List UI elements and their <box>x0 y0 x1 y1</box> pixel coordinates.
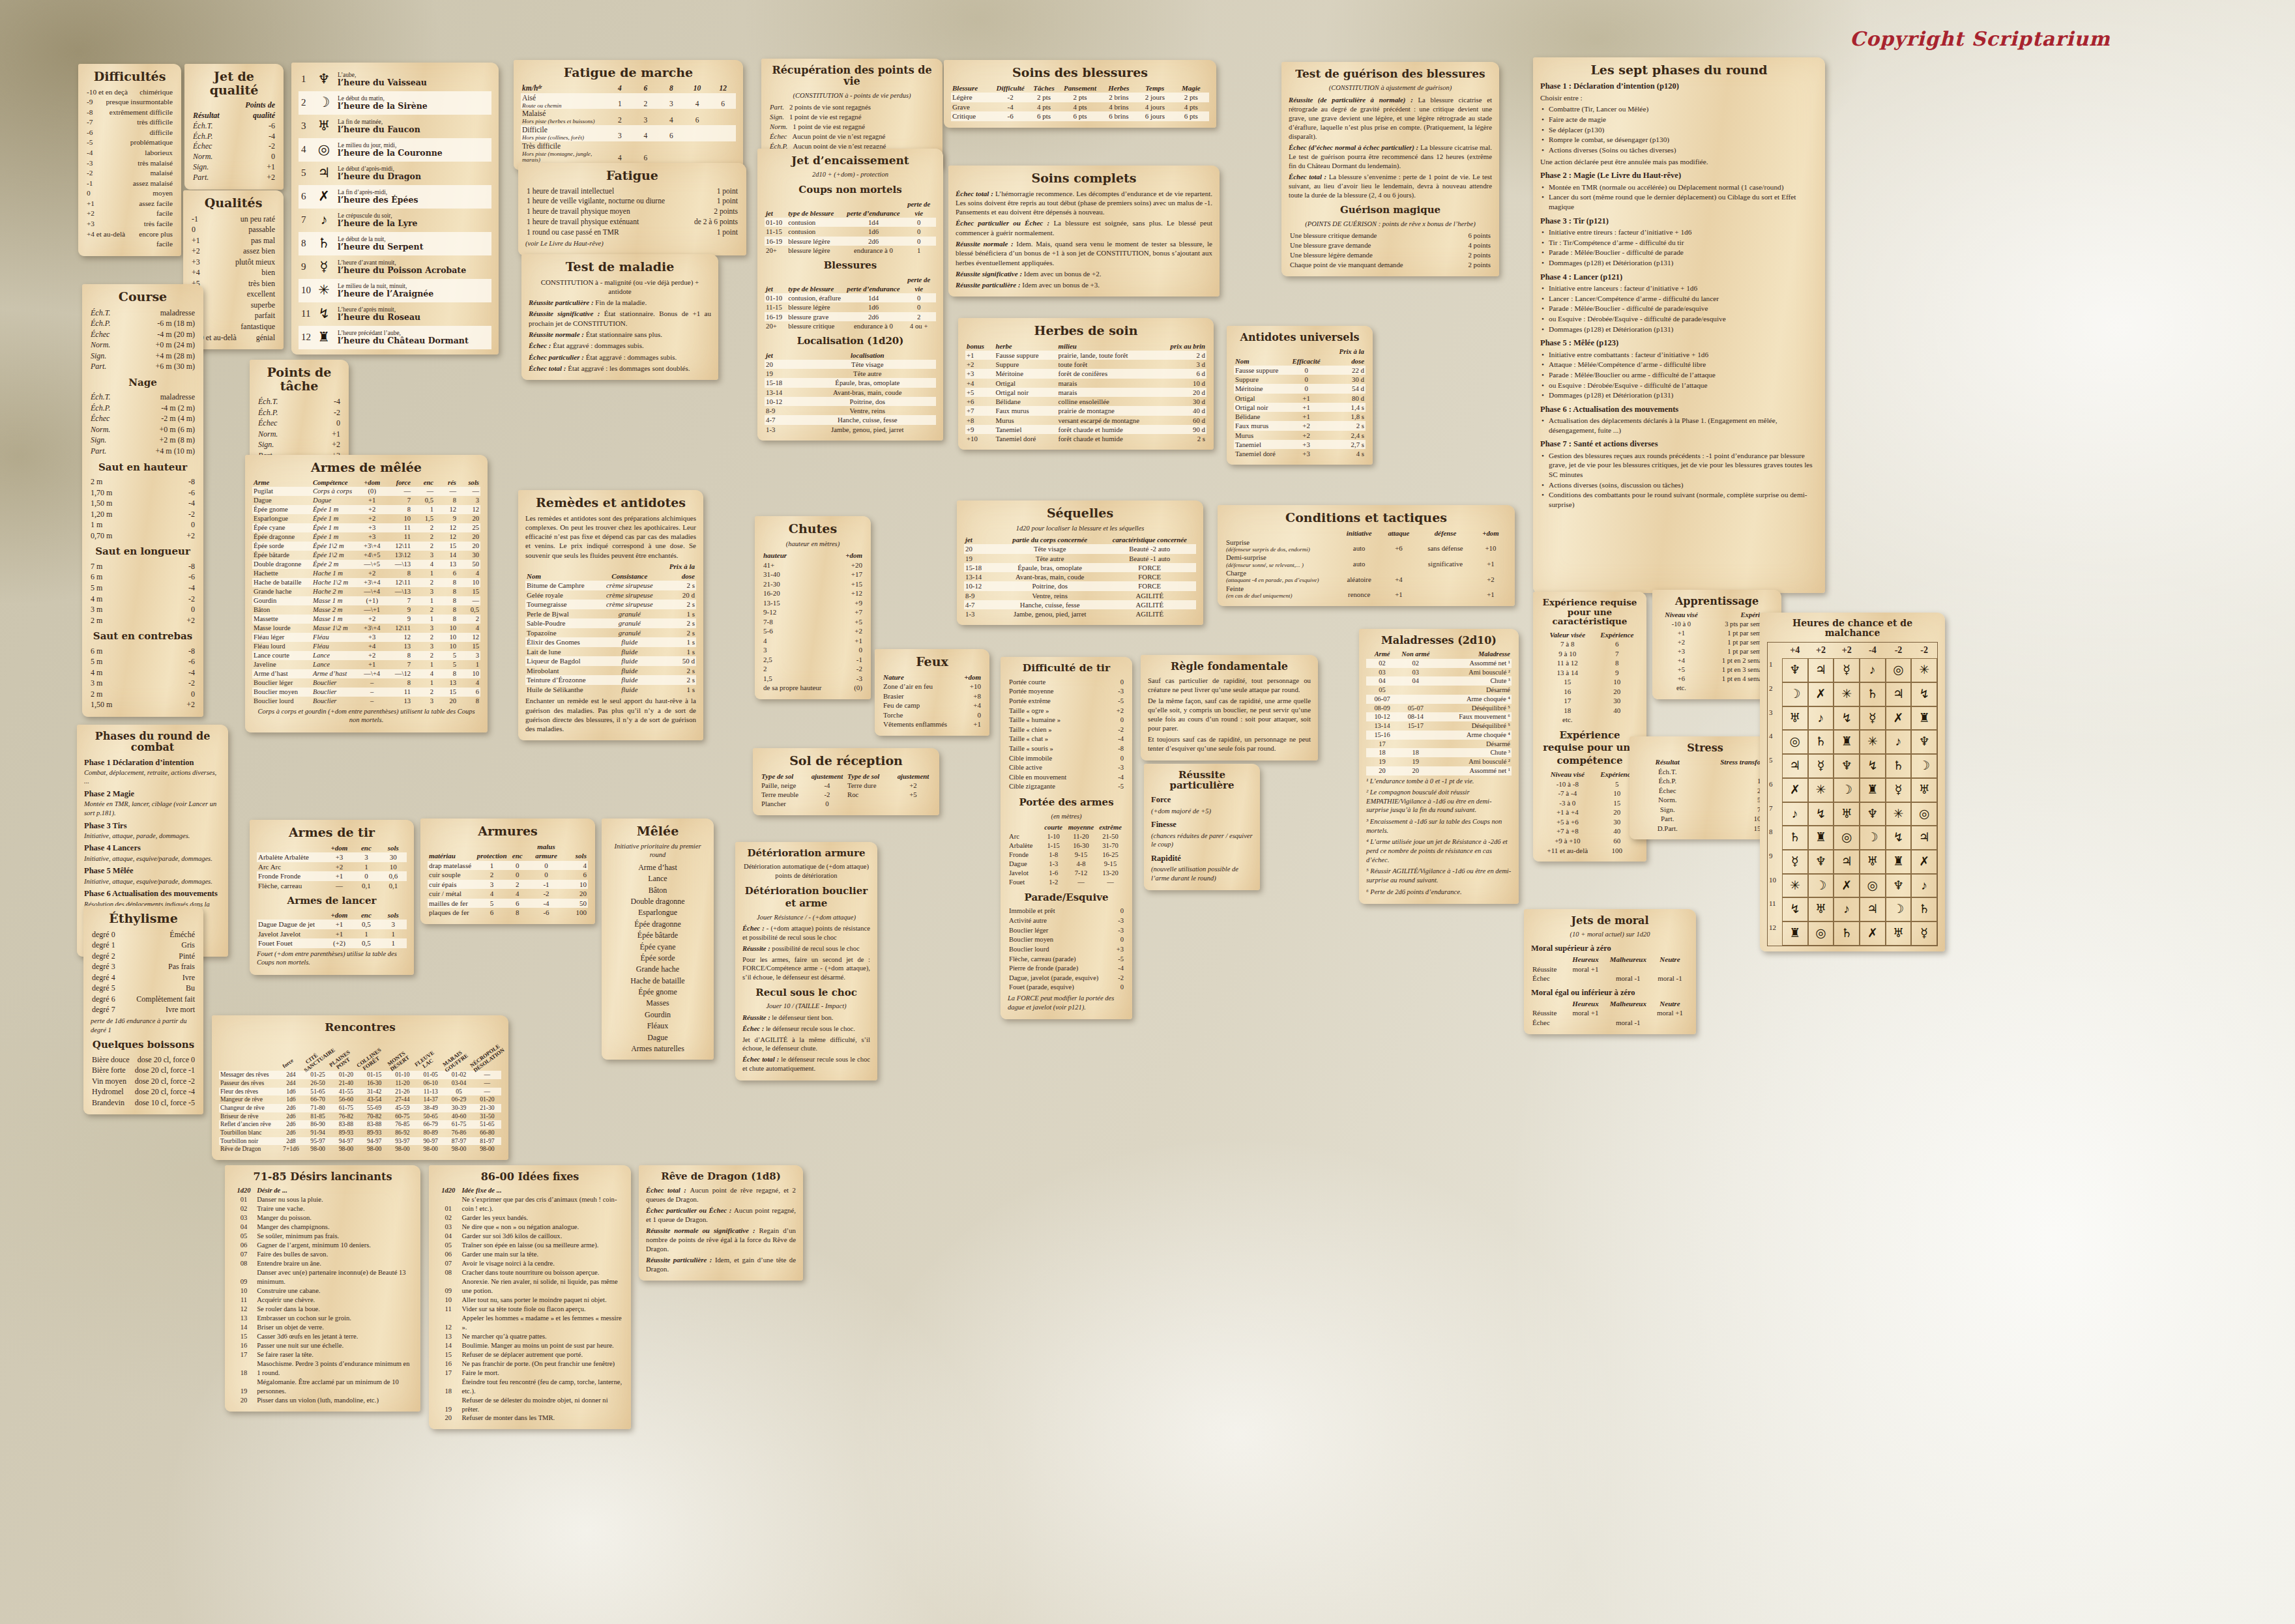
table-cell: 8 <box>509 908 526 918</box>
table-cell: (0) <box>358 487 386 496</box>
table-row: +6Bélidanecolline ensoleillée30 d <box>965 397 1206 406</box>
table-row: 41++20 <box>762 560 864 570</box>
bullet-item: •Parade : Mêlée/Bouclier - difficulté de… <box>1542 304 1818 313</box>
table-row: 1,70 m-6 <box>89 487 196 499</box>
table-cell: 13-14 <box>1367 721 1397 731</box>
table-cell: 10 <box>686 83 709 93</box>
table-cell: force <box>388 478 411 487</box>
bullet-item: •Dommages (p128) et Détérioration (p131) <box>1542 325 1818 334</box>
table-cell: Bitume de Camphre <box>527 581 599 590</box>
table-cell: 8 <box>436 578 456 587</box>
table-header-row: Nature+dom <box>882 673 982 682</box>
rune-icon: ♪ <box>1808 706 1834 731</box>
antidotes-universels-title: Antidotes universels <box>1234 332 1366 343</box>
table-body: AiséRoute ou chemin12346MalaiséHors pist… <box>521 93 736 164</box>
paragraph: Réussite particulière : Idem avec un bon… <box>956 280 1212 289</box>
hour-text: Le milieu de la nuit, minuit,l’heure de … <box>334 283 489 299</box>
table-cell: 8 <box>388 505 411 514</box>
table-cell: 61-75 <box>333 1104 358 1112</box>
table-row: +1assez facile <box>85 199 174 209</box>
table-row: 1510 <box>1540 677 1639 687</box>
rune-icon: ♆ <box>1834 754 1860 778</box>
table-row: Réussitemoral +1 <box>1531 964 1689 974</box>
table-row: Part.+2 <box>192 173 276 183</box>
row-value: +4 m (10 m) <box>156 446 195 457</box>
table-cell: sols <box>381 843 405 853</box>
table-cell: Fausse suppure <box>995 351 1055 360</box>
table-row: 16-20+12 <box>762 588 864 598</box>
recuperation-points-de-vie-title: Récupération des points de vie <box>768 65 935 87</box>
table-cell: FORCE <box>1105 581 1195 590</box>
table-cell: 01 <box>233 1195 254 1204</box>
table-cell: 38-49 <box>418 1104 443 1112</box>
table-row: de sa propre hauteur(0) <box>762 683 864 693</box>
list-item: Épée dragonne <box>609 919 707 930</box>
table-cell: 8 <box>660 83 683 93</box>
table-row: Torche0 <box>882 710 982 720</box>
table-cell: 14-37 <box>418 1095 443 1104</box>
table-cell: Sign. <box>193 162 229 173</box>
hour-name: l’heure du Faucon <box>338 125 489 134</box>
table-cell: 12 <box>436 523 456 532</box>
table-cell: 13 à 14 <box>1542 668 1594 678</box>
paragraph: Choisir entre : <box>1540 93 1818 103</box>
row-label: 1 heure de travail physique moyen <box>527 207 630 217</box>
table-row: Perle de Bjwalgranulé1 s <box>525 609 696 619</box>
table-cell: fluide <box>602 656 657 666</box>
experience-requise-title: Expérience requise pour une caractéristi… <box>1540 598 1639 626</box>
armures-title: Armures <box>428 824 588 838</box>
paragraph-heading: Force <box>1151 794 1253 805</box>
table-cell: 01-10 <box>766 218 785 227</box>
phase-description: Initiative, attaque, esquive/parade, dom… <box>84 877 221 886</box>
table-cell: 2 pts <box>1060 93 1099 102</box>
row-value: -4 <box>1118 734 1124 744</box>
table-header-row: 1d20Idée fixe de ... <box>436 1186 624 1195</box>
table-cell: Tête autre <box>998 554 1102 563</box>
table-cell: 2 pts <box>1030 93 1059 102</box>
table-cell: 31-70 <box>1097 841 1124 850</box>
table-cell: forêt chaude et humide <box>1059 425 1162 434</box>
table-row: -7très difficile <box>85 117 174 128</box>
table-cell: +9 <box>967 425 993 434</box>
note-text: (CONSTITUTION à - points de vie perdus) <box>768 91 935 100</box>
row-label: -2 <box>87 168 93 179</box>
bullet-icon: • <box>1542 115 1549 124</box>
table-row: 17Désarmé <box>1366 740 1512 749</box>
table-row: Pierre de fronde (parade)-4 <box>1008 964 1125 974</box>
table-cell: 12 <box>459 633 479 642</box>
table-cell: 10 d <box>1164 379 1205 388</box>
table-cell: Pugilat <box>254 487 310 496</box>
table-row: +9Tanemielforêt chaude et humide90 d <box>965 425 1206 434</box>
table-cell: 6 <box>509 899 526 908</box>
row-label: 0 <box>87 188 91 199</box>
table-cell: 41+ <box>763 560 822 570</box>
table-cell: 18 <box>233 1369 254 1378</box>
table-row: cuir souple2006 <box>428 870 588 880</box>
table-cell: 19 <box>1367 757 1397 766</box>
table-cell: Consistance <box>602 572 657 581</box>
row-label: Bière douce <box>92 1054 130 1066</box>
paragraph-lead: Réussite particulière : <box>646 1256 715 1264</box>
table-cell: 3 <box>459 651 479 660</box>
table-cell: (+2) <box>327 938 351 948</box>
table-cell: 11 <box>388 523 411 532</box>
table-cell: 1 <box>903 246 935 255</box>
table-header-row: forceCITÉ SANCTUAIREPLAINES PONTCOLLINES… <box>219 1037 501 1071</box>
table-cell: 1 <box>354 862 378 872</box>
table-cell: Arme d’hast <box>313 669 356 678</box>
row-value: très bien <box>248 278 275 289</box>
row-value: Gris <box>181 940 195 951</box>
hour-row: 8♄Le début de la nuit,l’heure du Serpent <box>299 232 491 255</box>
rune-icon: ♅ <box>1782 706 1808 731</box>
table-row: JavelineLance+17151 <box>252 660 480 669</box>
section-subtitle: Blessures <box>765 259 936 272</box>
section-subtitle: Détérioration bouclier et arme <box>742 885 870 910</box>
rune-icon: ☿ <box>1782 850 1808 874</box>
table-cell: Tanemiel doré <box>1235 449 1288 458</box>
table-cell: 12 <box>711 83 735 93</box>
table-cell: 21-30 <box>475 1104 500 1112</box>
row-value: -2 <box>1118 725 1124 735</box>
table-row: +5 à +630 <box>1540 817 1639 827</box>
table-cell: 10 <box>436 624 456 633</box>
list-item: Masses <box>609 998 707 1009</box>
list-item: Armes naturelles <box>609 1043 707 1054</box>
table-cell: 0 <box>509 870 526 880</box>
bullet-item: •Montée en TMR (normale ou accélérée) ou… <box>1542 182 1818 192</box>
table-cell: moral +1 <box>1567 964 1604 974</box>
table-body: 0202Assommé net ¹0303Ami bousculé ²0404C… <box>1366 659 1512 776</box>
course-nage-sauts: CourseÉch.T.maladresseÉch.P.-6 m (18 m)É… <box>82 284 203 717</box>
table-cell: 0 <box>529 870 564 880</box>
row-label: 1,50 m <box>91 498 112 509</box>
table-cell: 2 <box>763 664 822 674</box>
melee-initiative: MêléeInitiative prioritaire du premier r… <box>602 819 714 1060</box>
table-cell: Feinte <box>1226 584 1337 593</box>
table-row: +4bien <box>190 267 276 278</box>
table-cell: Entendre braire un âne. <box>257 1259 412 1268</box>
table-cell: 1 <box>381 938 405 948</box>
table-row: Grande hacheHache 2 m—\+4—\133815 <box>252 587 480 596</box>
table-cell: 20 <box>459 532 479 542</box>
table-cell: Charge <box>1226 568 1337 577</box>
row-label: Immobile et prêt <box>1009 906 1055 916</box>
table-cell: 1,5 <box>763 674 822 684</box>
rune-icon: ◎ <box>1911 802 1937 826</box>
table-row: 1-3Jambe, genou, pied, jarretAGILITÉ <box>964 609 1196 618</box>
phase-heading: Phase 4 Lancers <box>84 843 221 853</box>
rune-icon: ✗ <box>1808 682 1834 706</box>
table-row: 18Masochisme. Perdre 3 points d’enduranc… <box>232 1359 413 1378</box>
table-row: Dague, javelot (parade, esquive)-2 <box>1008 974 1125 983</box>
table-row: 1-3Jambe, genou, pied, jarret <box>765 425 936 434</box>
table-cell: cuir souple <box>429 870 475 880</box>
table-row: +1Fausse suppureprairie, lande, toute fo… <box>965 351 1206 360</box>
paragraph-lead: Échec : <box>742 925 767 932</box>
table-cell: 4 <box>634 131 658 141</box>
table-cell: 2d6 <box>280 1104 302 1112</box>
paragraph: Échec total : État aggravé : les dommage… <box>529 364 711 373</box>
bullet-item: •Faire acte de magie <box>1542 115 1818 124</box>
table-cell: 81-97 <box>475 1137 500 1146</box>
row-value: +6 m (30 m) <box>156 361 195 372</box>
table-cell: défense <box>1418 529 1472 538</box>
table-cell: sols <box>459 478 479 487</box>
heures-de-chance-et-malchance-title: Heures de chance et de malchance <box>1767 618 1938 638</box>
apprentissage-title: Apprentissage <box>1659 596 1774 607</box>
table-cell: 1d4 <box>847 293 901 302</box>
table-row: 8-9Ventre, reins <box>765 406 936 415</box>
table-cell: 10 <box>567 880 587 890</box>
paragraph: Échec total : L’hémorragie recommence. L… <box>956 189 1212 217</box>
table-cell: 30 <box>1596 696 1638 706</box>
bullet-item: •Lancer : Lancer/Compétence d’arme - dif… <box>1542 294 1818 304</box>
rune-icon: ☽ <box>1911 754 1937 778</box>
table-cell: 8 <box>436 669 456 678</box>
table-row: 13-14Avant-bras, main, coude <box>765 388 936 397</box>
row-label: Éch.P. <box>258 407 278 418</box>
hour-number: 6 <box>301 190 314 203</box>
paragraph-lead: Échec particulier ou Échec : <box>956 219 1053 227</box>
row-label: Norm. <box>770 122 787 132</box>
table-cell: 06 <box>233 1241 254 1250</box>
table-cell: Épée cyane <box>254 523 310 532</box>
table-cell: moral -1 <box>1652 974 1688 983</box>
table-cell: 12 <box>459 505 479 514</box>
table-cell: 8 <box>436 496 456 505</box>
table-cell-sub: Hors piste (herbes et buissons) <box>522 119 606 124</box>
row-value: +3 <box>1117 945 1124 955</box>
paragraph: Échec total : La blessure s’envenime : p… <box>1289 172 1492 199</box>
table-cell: hauteur <box>763 551 822 560</box>
table-cell: 1d6 <box>847 302 901 312</box>
table-cell: Mégalomanie. Être acclamé par un minimum… <box>257 1378 412 1396</box>
table-header-row: initiativeattaquedéfense+dom <box>1225 529 1508 538</box>
table-cell: +2 <box>967 360 993 369</box>
table-cell: 20 <box>1596 687 1638 697</box>
table-cell: Éch.P. <box>1638 776 1697 786</box>
data-table: Valeur viséeExpérience7 à 869 à 10711 à … <box>1540 630 1639 725</box>
rune-grid-row: 3♅♪↯☿✗♜ <box>1768 706 1937 731</box>
table-body: PugilatCorps à corps(0)————DagueDague+17… <box>252 487 480 705</box>
table-row: Fouet1-2—— <box>1008 878 1125 887</box>
rune-icon: ✗ <box>1834 874 1860 898</box>
table-row: 2 m-8 <box>89 476 196 487</box>
table-cell: 0 <box>509 861 526 871</box>
table-cell: 30 <box>381 852 405 862</box>
table-row: Sign.+2 <box>257 439 342 450</box>
table-cell: +dom <box>1475 529 1506 538</box>
row-value: Ivre <box>183 972 195 983</box>
table-cell: Manger du poisson. <box>257 1213 412 1223</box>
hour-rune-icon: ♜ <box>314 328 334 346</box>
table-cell: 17 <box>1542 696 1594 706</box>
table-cell: +4 <box>1661 656 1702 665</box>
row-label: Hydromel <box>92 1086 124 1097</box>
paragraph-heading: Phase 4 : Lancer (p121) <box>1540 272 1818 282</box>
table-cell: — <box>1097 878 1124 887</box>
table-row: Reflet d’ancien rêve2d686-9083-8883-8876… <box>219 1120 501 1129</box>
table-cell: 2d6 <box>280 1120 302 1129</box>
table-cell: Compétence <box>313 478 356 487</box>
table-cell: Herbes <box>1102 83 1135 93</box>
table-cell: jet <box>766 284 785 293</box>
table-cell: 50 <box>567 899 587 908</box>
row-value: -5 <box>1118 955 1124 964</box>
table-cell: Chute ³ <box>1435 748 1510 757</box>
table-cell: 19 <box>766 369 798 378</box>
table-cell: 8 <box>436 587 456 596</box>
points-de-tache: Points de tâcheÉch.T.-4Éch.P.-2Échec0Nor… <box>250 360 349 467</box>
row-value: 1 point <box>717 196 738 207</box>
table-cell: Tanemiel <box>1235 440 1288 449</box>
table-cell: Ortigal noir <box>1235 403 1288 412</box>
table-row: 1919Ami bousculé ² <box>1366 757 1512 766</box>
table-row: Norm.50 % <box>1637 795 1774 805</box>
course-nage-sauts-title: Course <box>89 290 196 304</box>
row-label: Sign. <box>91 351 106 362</box>
table-cell: Danser nu sous la pluie. <box>257 1195 412 1204</box>
table-cell: +1 <box>327 920 351 929</box>
table-row: 7 m-8 <box>89 561 196 572</box>
table-cell: 01 <box>437 1204 459 1213</box>
table-cell: Terre meuble <box>761 790 807 799</box>
hour-rune-icon: ◎ <box>314 141 334 158</box>
table-cell: Ami bousculé ² <box>1435 757 1510 766</box>
table-cell: 41-55 <box>333 1088 358 1096</box>
table-row: Taille « ogre »+2 <box>1008 706 1125 716</box>
table-cell: Corps à corps <box>313 487 356 496</box>
row-label: 5 m <box>91 656 102 667</box>
table-cell: Refuser de se déplacer autrement que por… <box>461 1350 622 1359</box>
reve-de-dragon: Rêve de Dragon (1d8)Échec total : Aucun … <box>639 1165 803 1281</box>
table-row: 4 m-4 <box>89 667 196 678</box>
table-row: 3 m-2 <box>89 678 196 689</box>
table-cell: 2,7 s <box>1324 440 1364 449</box>
paragraph: Les remèdes et antidotes sont des prépar… <box>525 514 696 560</box>
table-cell: Cracher dans toute nourriture ou boisson… <box>461 1268 622 1277</box>
table-cell: 60-75 <box>390 1112 415 1121</box>
paragraph: Détérioration automatique de (+dom attaq… <box>742 862 870 880</box>
table-cell: 6 brins <box>1102 111 1135 121</box>
table-row: +3très facile <box>85 219 174 229</box>
row-label: Taille « humaine » <box>1009 716 1060 725</box>
bullet-item: •Initiative entre lanceurs : facteur d’i… <box>1542 283 1818 293</box>
list-item: Fléaux <box>609 1021 707 1032</box>
bullet-item: •Initiative entre combattants : facteur … <box>1542 350 1818 360</box>
table-row: -4laborieux <box>85 148 174 158</box>
table-row: -3très malaisé <box>85 158 174 169</box>
rune-grid-row: 1♆♃☿♪◎✳ <box>1768 658 1937 682</box>
bullet-text: Actualisation des déplacements déclarés … <box>1549 416 1818 435</box>
rune-icon: ♜ <box>1911 706 1937 731</box>
table-cell: 2 jours <box>1138 93 1171 102</box>
table-row: 12Appeler les hommes « madame » et les f… <box>436 1314 624 1332</box>
table-row: -10 à -85 <box>1540 779 1639 789</box>
table-cell: 21-50 <box>1097 832 1124 841</box>
bullet-icon: • <box>1542 192 1549 211</box>
hour-name: l’heure du Dragon <box>338 172 489 181</box>
row-label: Bouclier léger <box>1009 926 1048 936</box>
data-table: HeureuxMalheureuxNeutreRéussitemoral +1É… <box>1531 955 1689 983</box>
table-row: Éch.T.maladresse <box>89 392 196 403</box>
bullet-text: Dommages (p128) et Détérioration (p131) <box>1549 258 1818 268</box>
table-body: 01-10contusion, éraflure1d4011-15blessur… <box>765 293 936 330</box>
hour-rune-icon: ♅ <box>314 117 334 135</box>
row-label: Dague, javelot (parade, esquive) <box>1009 974 1098 983</box>
table-row: Légère-22 pts2 pts2 brins2 jours2 pts <box>951 93 1209 102</box>
paragraph-text: De la même façon, sauf cas de rapidité, … <box>1148 697 1311 732</box>
table-cell: — <box>1068 878 1094 887</box>
rune-grid-modifier: -2 <box>1886 643 1912 658</box>
data-table: RésultatPoints de qualitéÉch.T.-6Éch.P.-… <box>192 100 276 183</box>
table-cell: 45-59 <box>390 1104 415 1112</box>
table-cell: Topazoïne <box>527 628 599 638</box>
row-value: 2 points <box>1469 250 1491 260</box>
table-row: +11 pt par semaine <box>1659 629 1774 638</box>
table-row: PugilatCorps à corps(0)———— <box>252 487 480 496</box>
table-row: 0404Chute ³ <box>1366 676 1512 686</box>
hour-name: l’heure du Vaisseau <box>338 78 489 87</box>
jet-de-qualite: Jet de qualitéRésultatPoints de qualitéÉ… <box>184 64 284 190</box>
paragraph-heading: Finesse <box>1151 819 1253 830</box>
table-row: HachetteHache 1 m+28164 <box>252 569 480 578</box>
table-row: 4 m-2 <box>89 594 196 605</box>
row-value: très facile <box>144 219 173 229</box>
bullet-icon: • <box>1542 381 1549 390</box>
row-value: 0 <box>1120 983 1124 993</box>
rune-icon: ↯ <box>1886 826 1912 850</box>
table-cell: toute forêt <box>1059 360 1162 369</box>
remedes-et-antidotes: Remèdes et antidotesLes remèdes et antid… <box>518 490 703 740</box>
table-header-row: NomConsistancePrix à la dose <box>525 562 696 581</box>
table-cell: Malheureux <box>1607 999 1650 1009</box>
table-cell: 4 ou + <box>903 321 935 330</box>
ethylisme-title: Éthylisme <box>91 912 196 925</box>
table-cell: Malaisé <box>522 109 606 119</box>
paragraph-text: possibilité de recul sous le choc <box>772 945 859 952</box>
hour-row: 9☿L’heure d’avant minuit,l’heure du Pois… <box>299 255 491 279</box>
table-cell: 1 s <box>660 609 695 619</box>
table-cell: Casser 3d6 œufs en les jetant à terre. <box>257 1332 412 1341</box>
paragraph-heading: Phase 1 : Déclaration d’intention (p120) <box>1540 81 1818 91</box>
table-cell: 19 <box>233 1387 254 1396</box>
row-value: excellent <box>247 289 275 300</box>
data-table: BlessureDifficultéTâchesPansementHerbesT… <box>951 83 1209 121</box>
table-cell: 2 s <box>660 675 695 685</box>
row-value: +2 <box>186 530 195 542</box>
table-cell: endurance à 0 <box>847 321 901 330</box>
row-label: 6 m <box>91 572 102 583</box>
regle-fondamentale: Règle fondamentaleSauf cas particulier d… <box>1141 655 1318 761</box>
table-cell: Huile de Sélikanthe <box>527 685 599 695</box>
table-cell: 4 <box>459 569 479 578</box>
reussite-particuliere: Réussite particulièreForce(+dom majoré d… <box>1144 764 1260 890</box>
table-row: -6difficile <box>85 128 174 138</box>
table-cell: 05 <box>1367 686 1397 695</box>
table-row: +4Ortigalmarais10 d <box>965 379 1206 388</box>
table-cell: Bélidane <box>1235 412 1288 421</box>
table-row: -9presque insurmontable <box>85 97 174 108</box>
table-row: degré 3Pas frais <box>91 961 196 972</box>
table-cell: -6 <box>993 111 1027 121</box>
table-cell: Faux mouvement ⁶ <box>1435 712 1510 721</box>
table-cell: 10 <box>459 669 479 678</box>
table-cell: 98-00 <box>390 1145 415 1153</box>
